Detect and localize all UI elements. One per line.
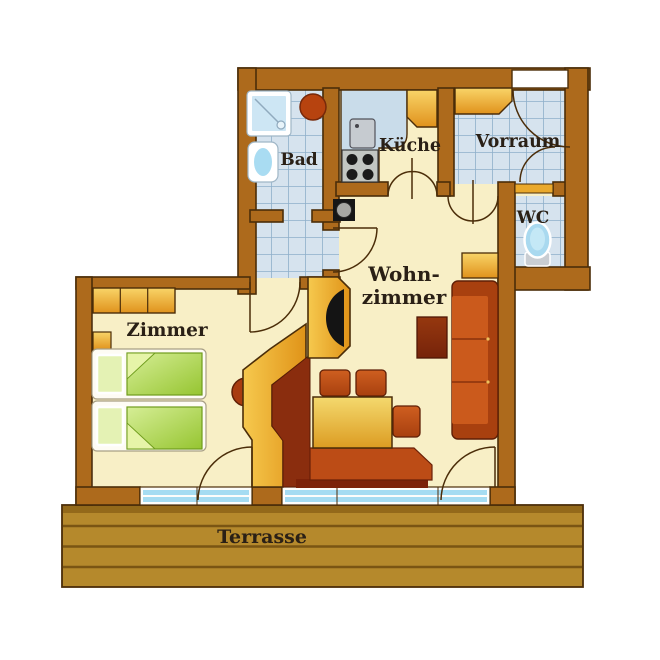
- window-wohnzimmer-glass-2: [285, 497, 487, 502]
- window-wohnzimmer-glass-1: [285, 490, 487, 495]
- terrasse-label: Terrasse: [217, 526, 307, 548]
- floor-plan: Terrasse: [0, 0, 660, 660]
- kueche-label: Küche: [379, 136, 441, 156]
- wall-zimmer-north: [76, 277, 250, 289]
- kitchen-cabinet: [407, 90, 437, 127]
- side-table: [462, 253, 498, 278]
- wall-bottom-right-pillar: [490, 487, 515, 505]
- coffee-table: [417, 317, 447, 358]
- chair-2: [356, 370, 386, 396]
- round-boiler: [300, 94, 326, 120]
- hall-wardrobe: [455, 88, 512, 114]
- sofa-seat: [452, 296, 488, 424]
- pillow-1: [97, 355, 123, 393]
- wc-label: WC: [516, 208, 550, 228]
- shower-drain-icon: [277, 121, 285, 129]
- bedroom-wardrobe: [93, 288, 175, 313]
- wohnzimmer-label-line2: zimmer: [362, 285, 447, 309]
- entrance-door: [512, 70, 568, 88]
- water-heater-dial-icon: [337, 203, 352, 218]
- wohnzimmer-label-line1: Wohn-: [367, 262, 440, 286]
- window-zimmer: [140, 487, 252, 505]
- kitchen-sink: [350, 119, 375, 148]
- nightstand: [93, 332, 111, 350]
- wall-kueche-south: [336, 182, 388, 196]
- wall-right-outer: [565, 68, 588, 290]
- window-zimmer-glass-2: [143, 497, 249, 502]
- wall-livingroom-east: [498, 182, 515, 505]
- dining-table: [313, 397, 392, 448]
- bad-label: Bad: [280, 150, 317, 170]
- vorraum-label: Vorraum: [475, 132, 561, 152]
- zimmer-label: Zimmer: [126, 320, 207, 341]
- window-zimmer-glass-1: [143, 490, 249, 495]
- pillow-2: [97, 407, 123, 445]
- toilet-bowl: [530, 228, 545, 251]
- terrace: Terrasse: [62, 505, 583, 587]
- burner-icon: [363, 169, 374, 180]
- wall-bad-hall-stub-left: [250, 210, 283, 222]
- wc-threshold: [515, 184, 553, 193]
- sofa-button-icon: [486, 337, 489, 340]
- wall-south-mid: [437, 182, 450, 196]
- chair-3: [393, 406, 420, 437]
- wall-left-main: [76, 277, 92, 505]
- corner-bench: [310, 448, 432, 480]
- burner-icon: [347, 169, 358, 180]
- wall-bottom-left: [76, 487, 140, 505]
- burner-icon: [347, 154, 358, 165]
- window-wohnzimmer: [282, 487, 490, 505]
- sofa-button-icon: [486, 380, 489, 383]
- terrace-top-strip: [63, 506, 582, 513]
- sink-drain-icon: [355, 124, 359, 128]
- washbasin-bowl: [253, 147, 273, 177]
- burner-icon: [363, 154, 374, 165]
- wall-bottom-pillar: [252, 487, 282, 505]
- chair-1: [320, 370, 350, 396]
- south-windows: [140, 487, 490, 505]
